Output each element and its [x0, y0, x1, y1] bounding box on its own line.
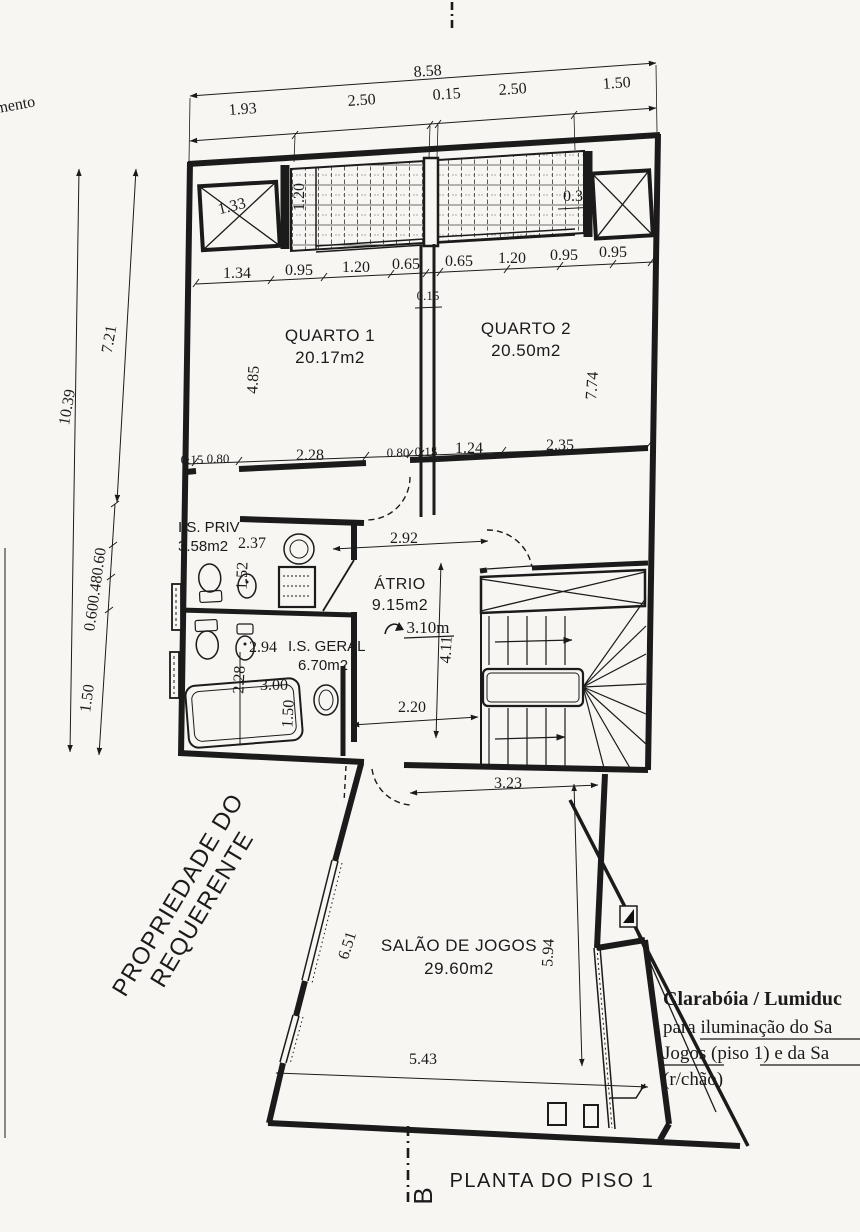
room-label-quarto1: QUARTO 1 [285, 326, 375, 345]
dim-win-8: 0.95 [599, 244, 627, 261]
room-area-is-geral: 6.70m2 [298, 657, 348, 674]
dim-salao-right: 5.94 [539, 938, 557, 967]
dim-mid-7: 2.35 [546, 437, 574, 454]
salao-window-2 [280, 1015, 303, 1064]
dim-tub-w: 3.00 [260, 677, 288, 694]
stair-landing-wall [483, 669, 583, 706]
closet-box-right [592, 170, 653, 238]
drawing-title: PLANTA DO PISO 1 [450, 1170, 655, 1192]
ceiling-height-note: 3.10m [407, 618, 450, 637]
dim-atrio-w: 2.92 [390, 530, 418, 547]
upper-interior-chain [193, 258, 654, 287]
bottom-wall-piers [548, 1103, 598, 1127]
exterior-window-slots [170, 584, 181, 698]
dim-win-1: 1.34 [223, 265, 251, 282]
dim-top-4: 2.50 [498, 80, 527, 99]
annotation-line-1: Clarabóia / Lumiduc [663, 988, 842, 1010]
dim-win-7: 0.95 [550, 247, 578, 264]
dim-top-3: 0.15 [432, 85, 461, 104]
room-area-is-priv: 3.58m2 [178, 538, 228, 555]
bedroom-divider-wall [421, 244, 434, 517]
dim-win-6: 1.20 [498, 250, 526, 267]
dim-salao-bottom: 5.43 [409, 1051, 437, 1068]
skylight-shaft [594, 947, 645, 1129]
dim-priv-h: 1.52 [234, 562, 252, 591]
dim-top-total: 8.58 [413, 62, 442, 81]
section-marker-label: B [408, 1187, 438, 1204]
property-note: PROPRIEDADE DO REQUERENTE [107, 789, 273, 1016]
salao-window-1 [302, 860, 342, 983]
room-label-salao: SALÃO DE JOGOS [381, 936, 537, 955]
room-label-is-geral: I.S. GERAL [288, 638, 366, 655]
closet-box-left [199, 182, 280, 250]
annotation-line-4: (r/chão) [663, 1069, 723, 1090]
dim-corridor: 2.20 [398, 699, 426, 716]
dim-win-2: 0.95 [285, 262, 313, 279]
dim-win-5: 0.65 [445, 253, 473, 270]
scanned-floor-plan-page: 8.58 1.93 2.50 0.15 2.50 1.50 1.33 1.20 … [0, 0, 860, 1232]
room-area-atrio: 9.15m2 [372, 597, 428, 614]
annotation-line-3: Jogos (piso 1) e da Sa [663, 1043, 830, 1064]
dim-quarto2-depth: 7.74 [583, 371, 602, 400]
dim-mid-2: 0.80 [207, 451, 230, 466]
room-area-salao: 29.60m2 [424, 959, 494, 978]
stair-winders [583, 598, 646, 768]
dim-atrio-d: 4.11 [437, 636, 455, 664]
dim-top-1: 1.93 [228, 100, 257, 119]
dim-priv-w: 2.37 [238, 535, 266, 552]
room-area-quarto1: 20.17m2 [295, 348, 365, 367]
dim-left-lower: 1.50 [77, 683, 98, 713]
door-arc-quarto1 [367, 477, 410, 520]
dim-win-3: 1.20 [342, 259, 370, 276]
washbasin-icon [284, 534, 314, 564]
washbasin-icon [314, 685, 338, 715]
left-dimension-lines [70, 169, 136, 755]
dim-left-upper: 7.21 [99, 324, 121, 355]
room-label-is-priv: I.S. PRIV [178, 519, 240, 536]
edge-note: imento [0, 93, 36, 117]
room-area-quarto2: 20.50m2 [491, 341, 561, 360]
annotation-line-2: para iluminação do Sa [663, 1017, 833, 1038]
dim-left-total: 10.39 [56, 388, 79, 426]
dim-top-2: 2.50 [347, 91, 376, 110]
dim-win-4: 0.65 [392, 256, 420, 273]
dim-closet-left: 1.33 [216, 195, 247, 218]
dim-mid-6: 1.24 [455, 440, 483, 457]
dim-left-mid: 0.600.480.60 [81, 547, 110, 633]
dim-line-015 [415, 302, 442, 312]
dim-quarto1-depth: 4.85 [244, 365, 262, 394]
floor-plan-drawing: 8.58 1.93 2.50 0.15 2.50 1.50 1.33 1.20 … [0, 0, 860, 1232]
dim-strip-left: 1.20 [291, 183, 308, 211]
dim-mid-1: 0.15 [181, 452, 204, 467]
room-label-quarto2: QUARTO 2 [481, 319, 571, 338]
door-arc-stairhall [487, 530, 532, 567]
room-label-atrio: ÁTRIO [374, 574, 425, 593]
dim-tub-h: 1.50 [279, 699, 297, 728]
dim-mid-4: 0.80 [387, 445, 410, 460]
dim-salao-top: 3.23 [494, 775, 522, 792]
toilet-icon [195, 619, 219, 659]
dim-salao-left: 6.51 [335, 930, 360, 962]
dim-mid-3: 2.28 [296, 447, 324, 464]
dim-closet-right: 0.30 [563, 188, 591, 205]
claraboia-marker-icon [620, 906, 637, 927]
dim-geral-w: 2.94 [249, 639, 277, 656]
shower-icon [279, 567, 315, 607]
toilet-icon [198, 563, 222, 602]
staircase [480, 530, 648, 768]
dim-mid-5: 0.15 [415, 444, 438, 459]
dim-top-5: 1.50 [602, 74, 631, 93]
